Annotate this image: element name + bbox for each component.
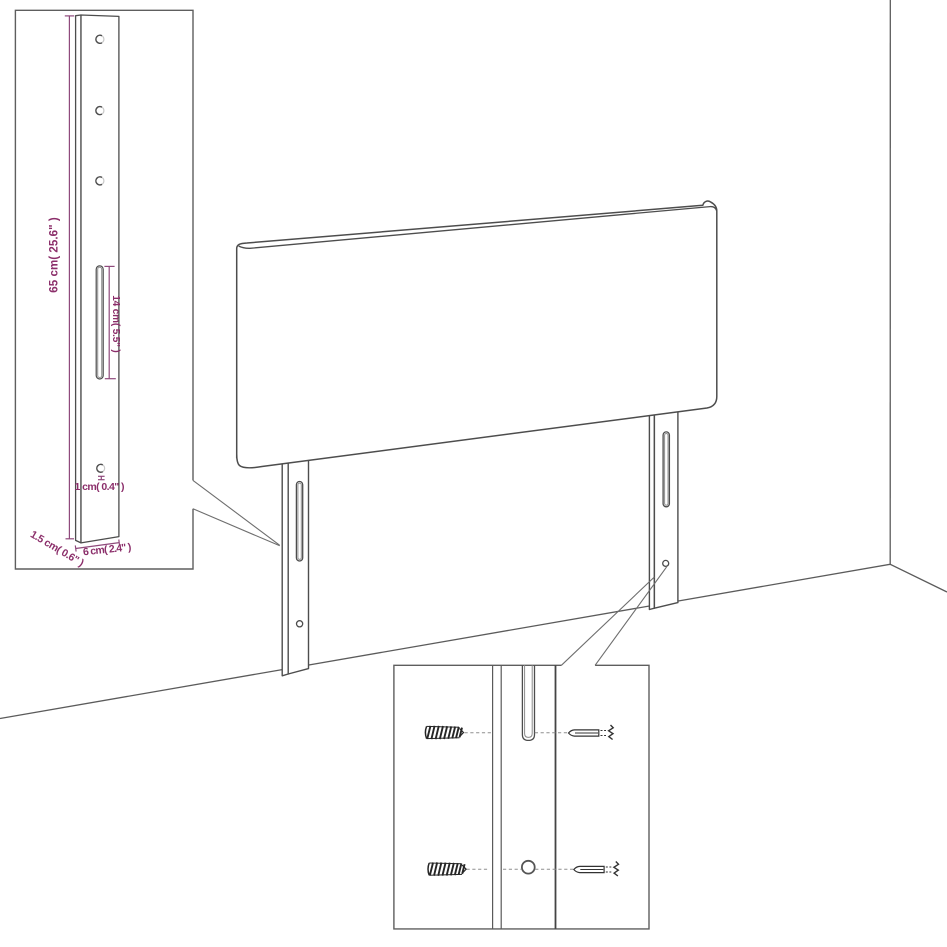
svg-text:65 cm( 25.6" ): 65 cm( 25.6" ) [49, 217, 61, 293]
svg-text:1 cm( 0.4" ): 1 cm( 0.4" ) [75, 481, 125, 493]
svg-text:14 cm( 5.5" ): 14 cm( 5.5" ) [110, 295, 121, 353]
